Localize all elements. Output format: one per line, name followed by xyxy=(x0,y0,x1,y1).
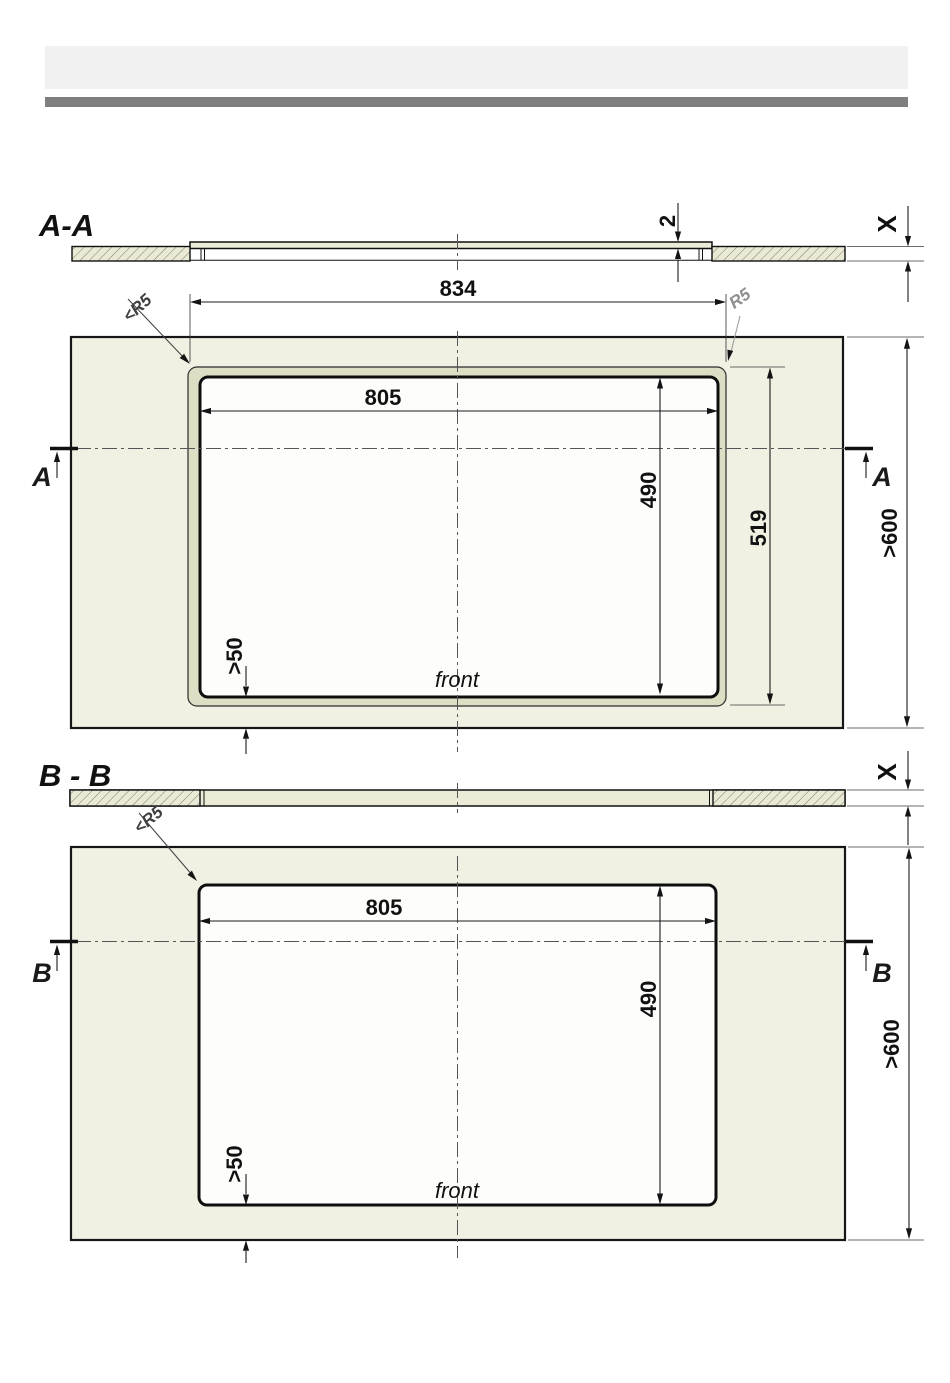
dim-490-a-label: 490 xyxy=(636,472,661,509)
front-label-a: front xyxy=(435,667,480,692)
marker-a-right-label: A xyxy=(871,462,892,492)
plan-view-b: 805 490 >600 >50 front <R5 xyxy=(32,802,924,1263)
section-marker-b-right: B xyxy=(845,942,892,989)
section-bb-plate xyxy=(70,783,845,813)
header xyxy=(45,46,908,107)
dim-glass-step-label: 2 xyxy=(655,215,680,227)
dim-600-a-label: >600 xyxy=(877,508,902,558)
radius-label-a: R5 xyxy=(725,284,754,312)
dim-50-a-label: >50 xyxy=(222,637,247,674)
dim-thickness-x-bb: X xyxy=(847,751,924,845)
section-marker-a-right: A xyxy=(845,449,892,493)
dim-600-a: >600 xyxy=(847,337,924,728)
header-bar-light xyxy=(45,46,908,89)
header-bar-dark xyxy=(45,97,908,107)
dim-600-b-label: >600 xyxy=(879,1019,904,1069)
worktop-section-left xyxy=(72,247,190,262)
dim-490-b-label: 490 xyxy=(636,981,661,1018)
dim-thickness-x-aa: X xyxy=(847,206,924,302)
dim-600-b: >600 xyxy=(848,847,924,1240)
cutout-a xyxy=(200,377,718,697)
front-label-b: front xyxy=(435,1178,480,1203)
dim-thickness-x-bb-label: X xyxy=(872,763,902,781)
section-bb: B - B X xyxy=(39,751,924,845)
section-b-label: B - B xyxy=(39,758,111,793)
marker-b-left-label: B xyxy=(32,958,52,988)
section-a-label: A-A xyxy=(38,208,94,243)
dim-thickness-x-aa-label: X xyxy=(872,215,902,233)
glass-panel-section xyxy=(190,242,712,249)
dim-834-label: 834 xyxy=(440,276,477,301)
worktop-section-bb-left xyxy=(70,790,200,806)
radius-max-label-b: <R5 xyxy=(130,802,167,837)
dim-805-b-label: 805 xyxy=(366,895,403,920)
dim-50-b-label: >50 xyxy=(222,1145,247,1182)
dim-519-label: 519 xyxy=(746,510,771,547)
technical-drawing: A-A 2 xyxy=(0,0,950,1383)
flange-step-lines xyxy=(201,249,703,261)
plan-view-a: 834 805 490 519 >600 xyxy=(31,276,924,754)
drawing-page: A-A 2 xyxy=(0,0,950,1383)
worktop-section-bb-right xyxy=(713,790,845,806)
marker-b-right-label: B xyxy=(872,958,892,988)
section-aa: A-A 2 xyxy=(38,203,924,302)
dim-805-a-label: 805 xyxy=(365,385,402,410)
worktop-section-right xyxy=(712,247,845,262)
marker-a-left-label: A xyxy=(31,462,52,492)
section-aa-plate xyxy=(72,234,845,270)
radius-max-label-a: <R5 xyxy=(119,290,156,326)
